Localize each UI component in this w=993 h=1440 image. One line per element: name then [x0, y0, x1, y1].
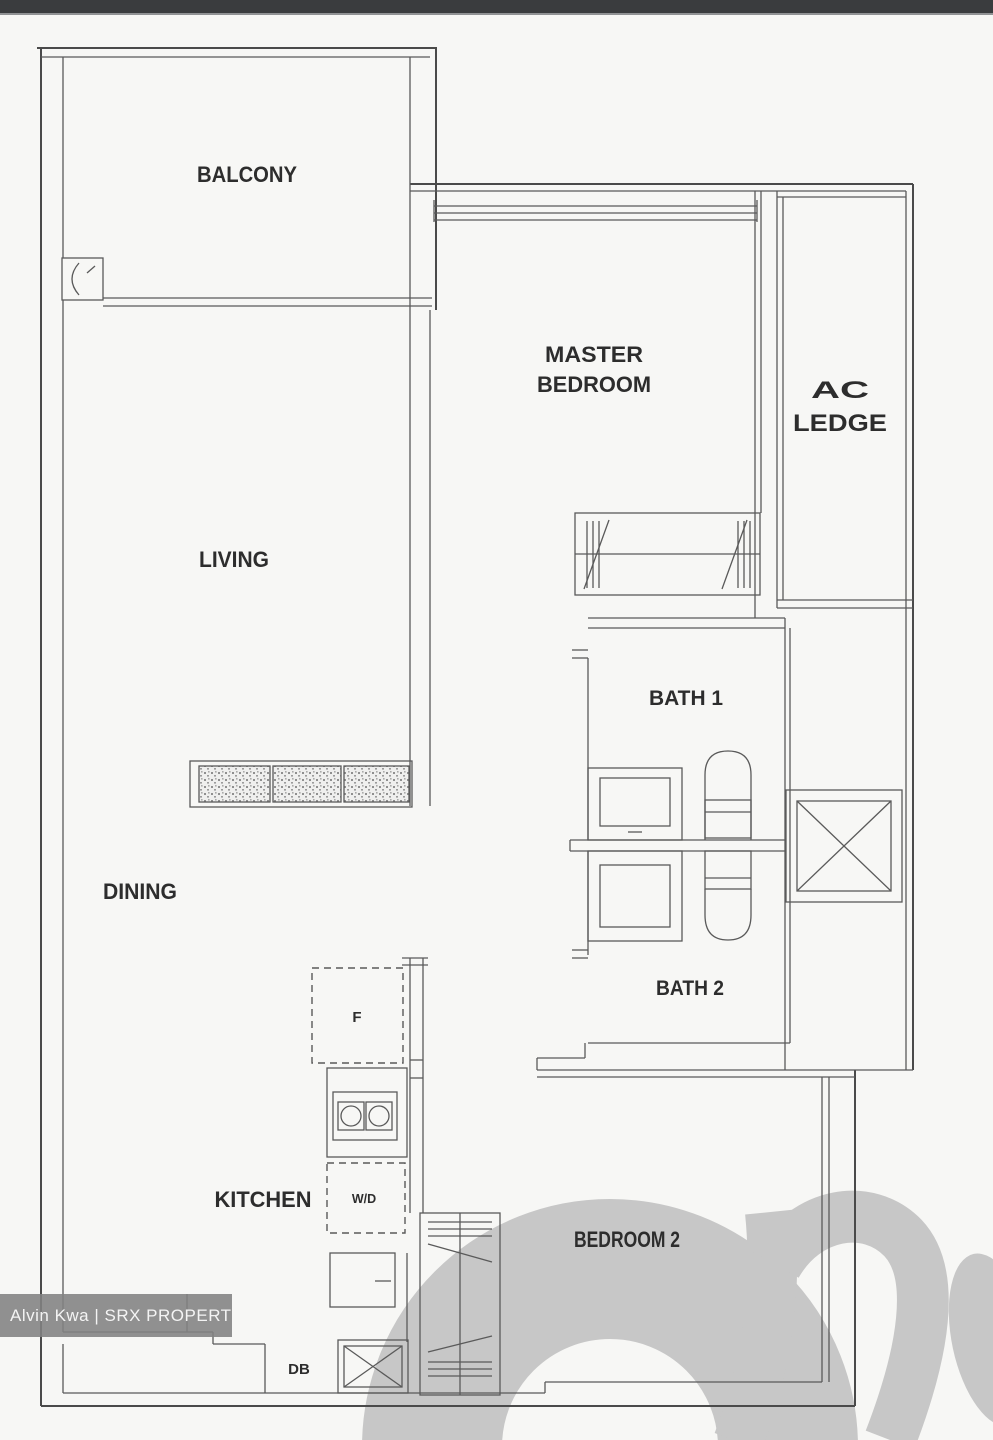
floor-plan-page: BALCONY MASTER BEDROOM AC LEDGE LIVING B…: [0, 0, 993, 1440]
oven: [330, 1253, 395, 1307]
agent-watermark-bar: Alvin Kwa | SRX PROPERTY: [0, 1294, 232, 1337]
outer-walls: [37, 48, 913, 1406]
washer-dryer-label: W/D: [352, 1192, 376, 1206]
agent-watermark-text: Alvin Kwa | SRX PROPERTY: [10, 1306, 232, 1325]
master-wardrobe: [575, 513, 760, 595]
bath2-toilet: [705, 851, 751, 940]
ac-ledge-label-line2: LEDGE: [793, 410, 887, 437]
master-bedroom-label-line2: BEDROOM: [537, 372, 651, 397]
fridge-label: F: [352, 1009, 361, 1026]
bath1-vanity: [588, 768, 682, 840]
kitchen-sink: [327, 1068, 407, 1157]
distribution-board-label: DB: [288, 1361, 310, 1378]
bath2-label: BATH 2: [656, 977, 724, 1000]
floor-plan-svg: BALCONY MASTER BEDROOM AC LEDGE LIVING B…: [0, 0, 993, 1440]
ac-ledge-label-line1: AC: [811, 377, 869, 404]
master-bedroom-label-line1: MASTER: [545, 342, 643, 367]
bedroom2-label: BEDROOM 2: [574, 1227, 680, 1252]
bath1-label: BATH 1: [649, 687, 723, 710]
bath2-vanity: [588, 851, 682, 941]
dining-label: DINING: [103, 879, 177, 904]
kitchen-label: KITCHEN: [215, 1187, 312, 1212]
balcony-door-box: [62, 258, 103, 300]
living-label: LIVING: [199, 547, 269, 572]
bath1-toilet: [705, 751, 751, 840]
shower-stall: [786, 790, 902, 902]
interior-walls: [41, 57, 913, 1393]
living-cabinet: [190, 761, 412, 807]
balcony-label: BALCONY: [197, 162, 297, 187]
